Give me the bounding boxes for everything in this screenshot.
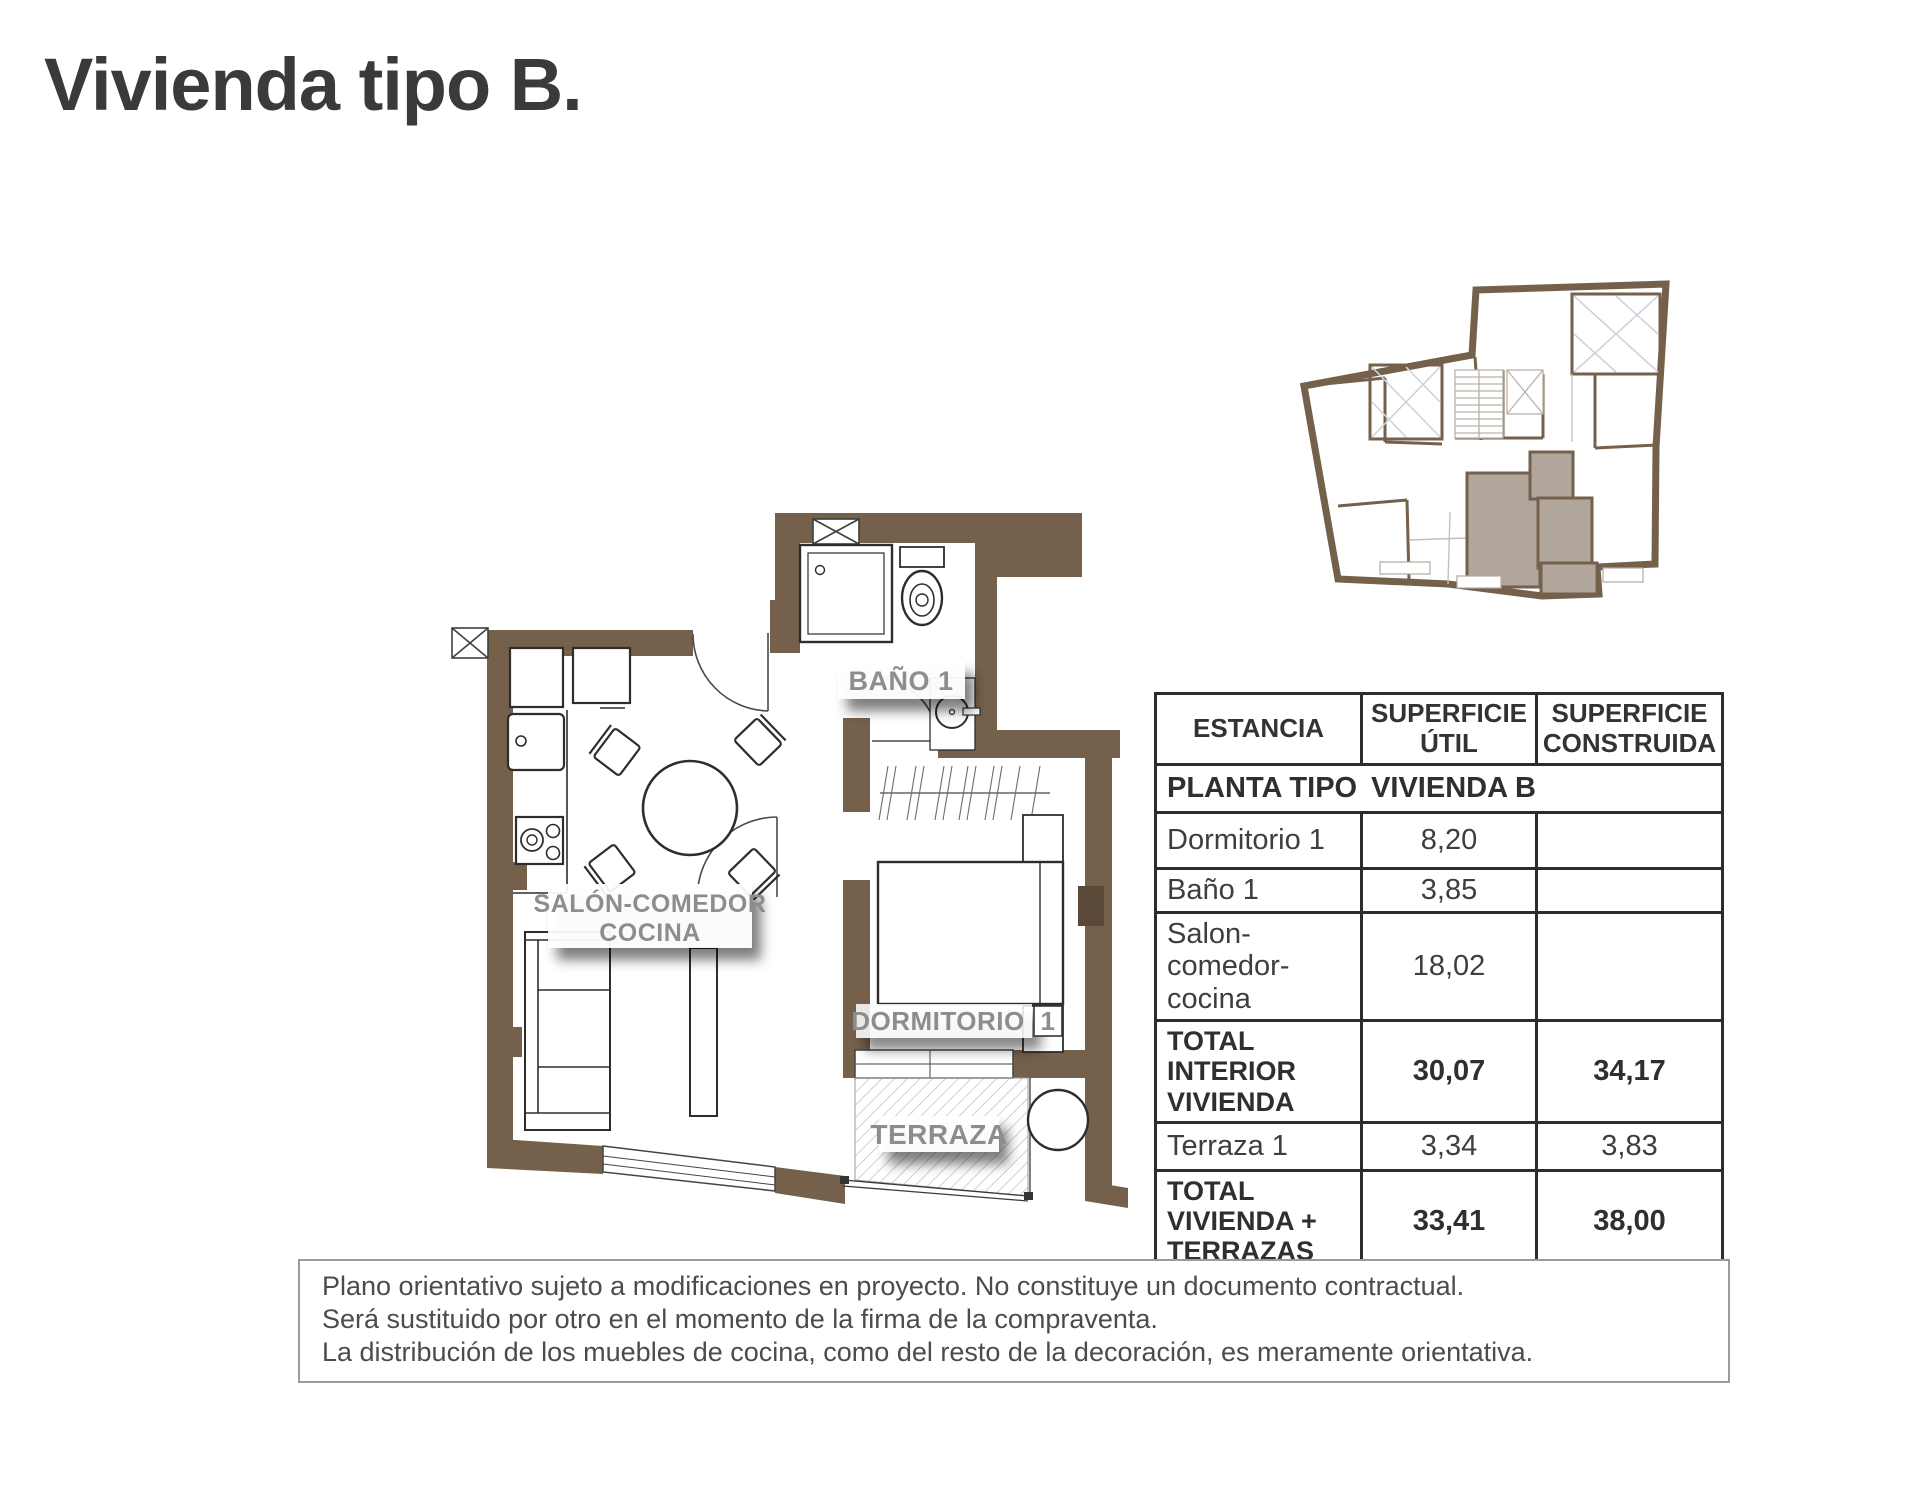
room-label-living: SALÓN-COMEDOR COCINA [534,884,767,948]
vivienda-b-label: VIVIENDA B [1371,772,1536,804]
table-row-total-vivienda: TOTAL VIVIENDA + TERRAZAS 33,41 38,00 [1156,1170,1723,1272]
col-header-superficie-construida: SUPERFICIE CONSTRUIDA [1537,694,1723,765]
svg-text:SALÓN-COMEDOR: SALÓN-COMEDOR [534,888,767,918]
col-header-estancia: ESTANCIA [1156,694,1362,765]
col-header-superficie-util: SUPERFICIE ÚTIL [1362,694,1537,765]
table-row: Dormitorio 1 8,20 [1156,812,1723,868]
apartment-floor-plan: BAÑO 1 SALÓN-COMEDOR COCINA DORMITORIO 1… [440,505,1130,1237]
svg-text:DORMITORIO: DORMITORIO [851,1006,1025,1036]
page-title: Vivienda tipo B. [44,42,582,127]
disclaimer-box: Plano orientativo sujeto a modificacione… [298,1259,1730,1383]
dining-table [584,714,785,899]
table-row-planta-tipo: PLANTA TIPO VIVIENDA B [1156,764,1723,812]
disclaimer-line: Plano orientativo sujeto a modificacione… [322,1270,1712,1303]
stairs [1455,370,1503,438]
svg-text:COCINA: COCINA [599,919,701,947]
terrace-table [1028,1090,1088,1150]
table-row-total-interior: TOTAL INTERIOR VIVIENDA 30,07 34,17 [1156,1021,1723,1123]
svg-text:1: 1 [1041,1006,1056,1036]
surface-area-table: ESTANCIA SUPERFICIE ÚTIL SUPERFICIE CONS… [1154,692,1724,1274]
svg-text:TERRAZA: TERRAZA [870,1119,1007,1150]
elevator [1507,370,1543,414]
room-label-terrace: TERRAZA [870,1116,1007,1152]
sofa [525,932,610,1130]
svg-text:BAÑO 1: BAÑO 1 [848,665,953,696]
room-label-bedroom: DORMITORIO 1 [851,1004,1062,1038]
bathroom-fixtures [800,545,980,750]
plan-sheet-page: Vivienda tipo B. [0,0,1920,1493]
table-row: Salon-comedor-cocina 18,02 [1156,912,1723,1020]
disclaimer-line: La distribución de los muebles de cocina… [322,1336,1712,1369]
room-label-bathroom: BAÑO 1 [838,661,965,699]
building-key-plan [1285,262,1710,614]
disclaimer-line: Será sustituido por otro en el momento d… [322,1303,1712,1336]
wall-window-marker [1078,886,1104,926]
table-row: Baño 1 3,85 [1156,868,1723,912]
table-row: Terraza 1 3,34 3,83 [1156,1122,1723,1170]
planta-tipo-label: PLANTA TIPO [1167,772,1363,805]
tv-sideboard [690,948,717,1116]
